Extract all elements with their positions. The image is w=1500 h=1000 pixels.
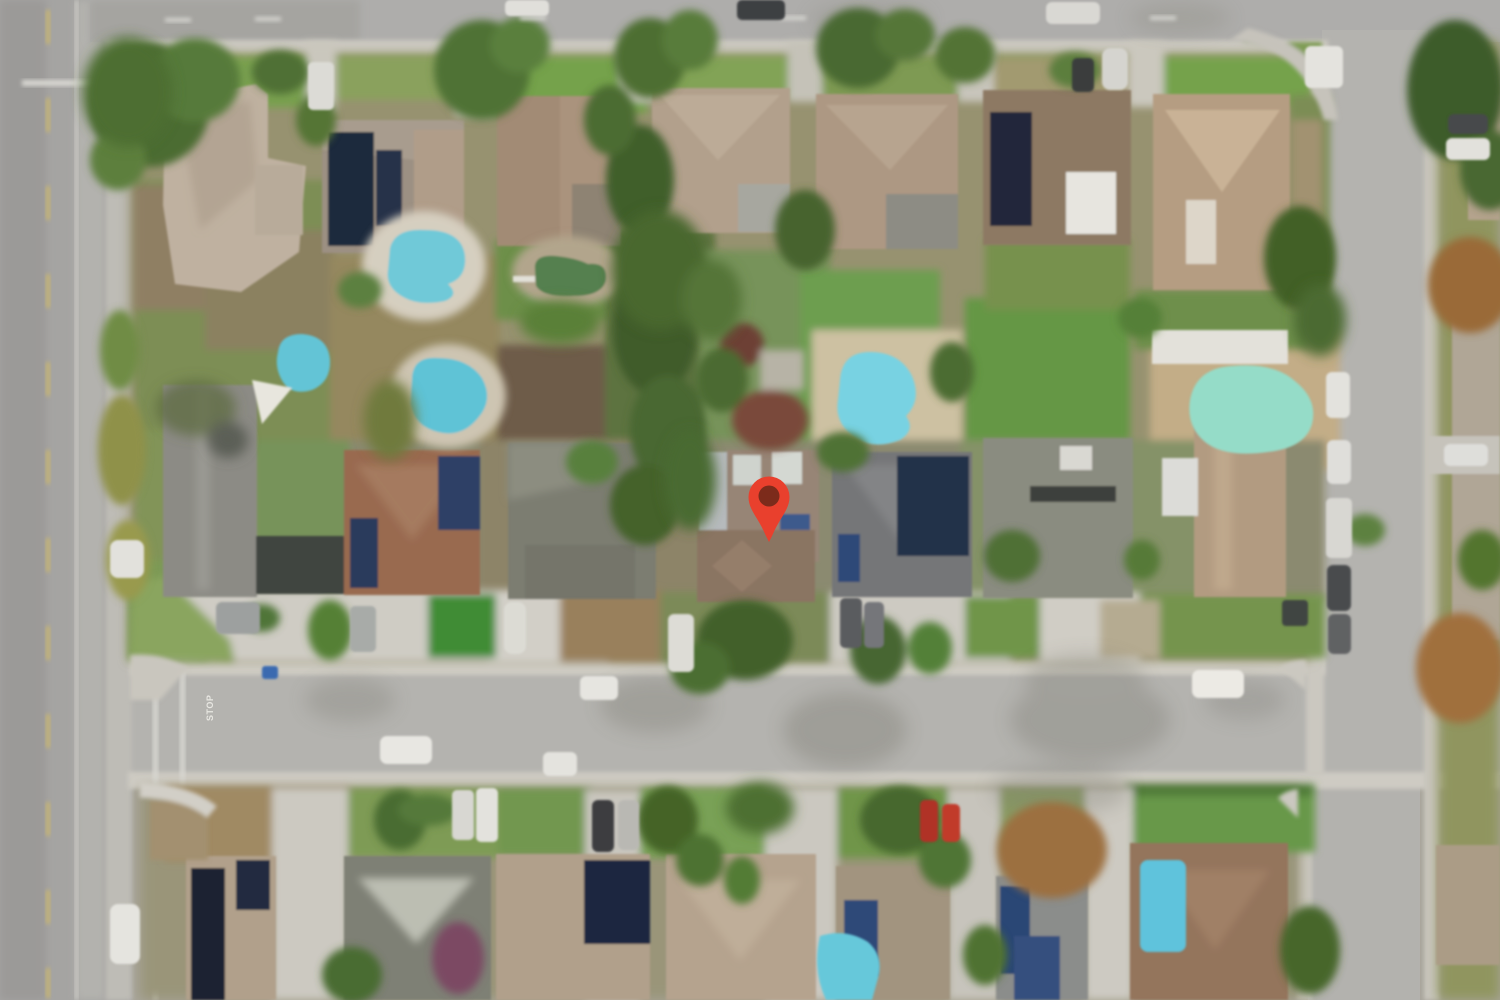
svg-text:STOP: STOP: [205, 695, 215, 721]
